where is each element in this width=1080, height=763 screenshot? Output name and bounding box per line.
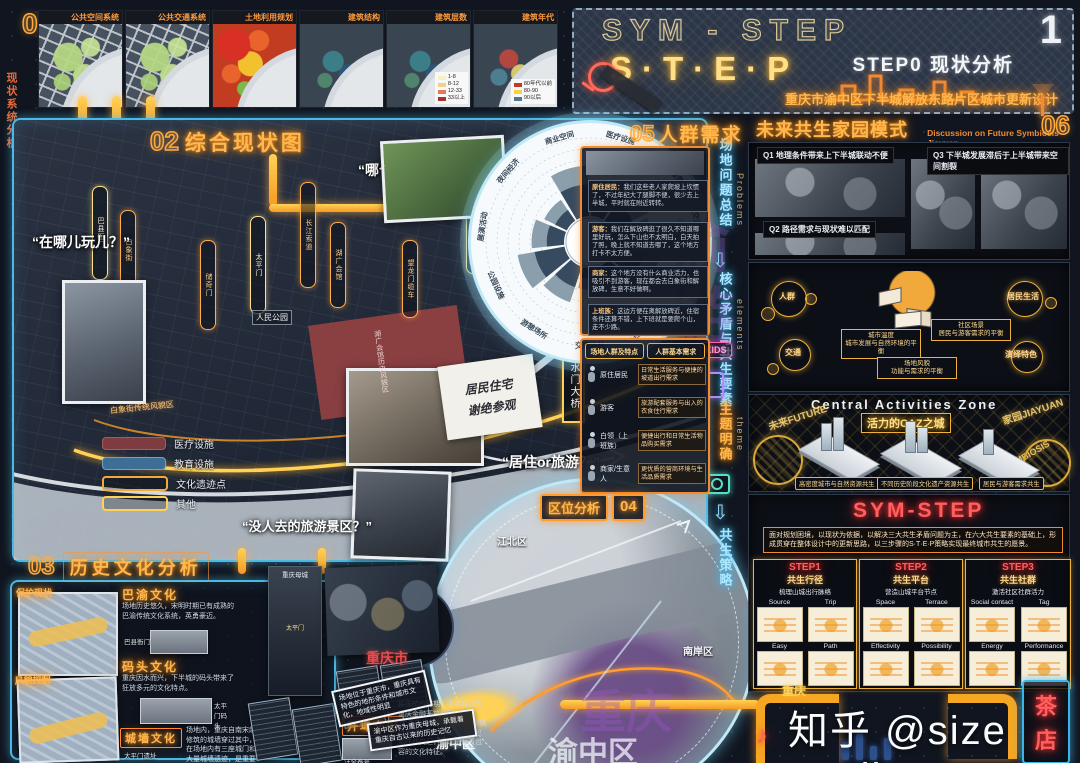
building-bar [917, 427, 928, 453]
map-card-transit: 公共交通系统 [125, 10, 210, 108]
needs-table-chips: 场地人群及特点 人群基本需求 [585, 343, 705, 359]
step-sub: 梳理山城出行脉络 [754, 586, 856, 596]
flow-arrow-icon: ⇩ [712, 248, 729, 273]
cell-label: Tag [1039, 599, 1050, 606]
legend-swatch [438, 83, 446, 87]
age-legend: 80年代以前 80-90 90以后 [511, 79, 555, 104]
legend-swatch [438, 90, 446, 94]
site-tag: 长江索道 [300, 182, 316, 288]
note-line1: 居民住宅 [464, 375, 514, 399]
section-04-header: 区位分析 04 [540, 494, 645, 521]
culture-text-wall: 场地内，重庆自南宋起修筑的城墙穿过其中，在场地内有三座城门和大量城墙遗迹，是重要… [186, 726, 262, 763]
elements-section: elements 人群 交通 居民生活 演绎特色 城市温度 城市发展与自然环境的… [748, 262, 1070, 392]
diagram-cell [863, 651, 909, 686]
legend-swatch-other [102, 496, 168, 511]
legend-swatch [514, 97, 522, 101]
sketch-caption-wall: 太平门遗址 [124, 750, 157, 760]
map-card-landuse: 土地利用规划 [212, 10, 297, 108]
radar-category-label: 展演活动 [475, 210, 489, 243]
need-row: 游客 旅游配套服务与出入的衣食住行需求 [587, 397, 706, 418]
need-row: 白领（上班族） 便捷出行和日常生活物品购买需求 [587, 430, 706, 451]
problem-q1: Q1 地理条件带来上下半城联动不便 [757, 147, 894, 164]
sketch-bayu [150, 630, 208, 654]
map-card-title: 建筑结构 [300, 11, 383, 24]
poster-board: 01 现状系统分析 公共空间系统 公共交通系统 土地利用规划 建筑结构 建筑层数… [0, 0, 1080, 763]
person-icon [587, 399, 596, 416]
element-tag-3: 场地风貌 功能与需求的平衡 [877, 357, 957, 379]
logo-letters: S·T·E·P [610, 50, 799, 88]
map-band [27, 616, 109, 648]
handwritten-note: 居民住宅 谢绝参观 [437, 354, 542, 441]
map-card-structure: 建筑结构 [299, 10, 384, 108]
cell-label: Path [824, 643, 838, 650]
legend-swatch [438, 76, 446, 80]
quote-card: 游客：我们在解放碑逛了很久不知道哪里好玩，怎么下山也不太明白，白天拍了照，晚上就… [588, 222, 708, 262]
cluster-dot [767, 363, 779, 375]
symstep-group-1: STEP1 共生行径 梳理山城出行脉络 Source Easy Trip Pat… [753, 559, 857, 689]
section-06-number: 06 [1041, 110, 1070, 141]
page-number: 1 [1040, 8, 1062, 53]
bubble-where-to-play: “在哪儿玩儿？” [32, 232, 130, 252]
element-tag-sub: 功能与需求的平衡 [881, 368, 953, 376]
panel-06-future: 未来共生家园模式探索 Discussion on Future Symbiosi… [748, 114, 1072, 694]
cluster-label-people: 人群 [779, 291, 795, 302]
mother-city-photo: 重庆母城 太平门 [268, 566, 322, 696]
need-text: 便捷出行和日常生活物品购买需求 [638, 430, 706, 451]
cluster-dot [805, 293, 817, 305]
diagram-cell [969, 651, 1015, 686]
sketch-caption-port: 汪全泰号 [344, 756, 370, 763]
bubble-empty-attraction: “没人去的旅游景区？” [242, 516, 372, 535]
section-02-title: 综合现状图 [185, 127, 305, 157]
cluster-label-traffic: 交通 [785, 347, 801, 358]
symstep-group-2: STEP2 共生平台 营造山城平台节点 Space Effectivity Te… [859, 559, 963, 689]
need-who: 游客 [600, 403, 634, 413]
history-map-label: 保护现状 [16, 586, 52, 599]
cell-label: Effectivity [871, 643, 900, 650]
history-map-protection: 保护现状 [18, 592, 118, 676]
music-note-icon: ♪ [756, 722, 768, 750]
person-icon [587, 432, 596, 449]
problem-q2: Q2 路径需求与现状难以匹配 [763, 221, 876, 238]
step-cn: 共生行径 [754, 573, 856, 586]
step-cn: 共生平台 [860, 573, 962, 586]
diagram-cell [808, 651, 854, 686]
diagram-cell [757, 607, 803, 642]
cluster-label-culture: 演绎特色 [1005, 349, 1037, 360]
need-who: 商家/生意人 [600, 464, 634, 484]
section-05-header: 05 人群需求 [630, 120, 743, 147]
map-card-title: 公共空间系统 [39, 11, 122, 24]
step-name: STEP3 [966, 562, 1070, 573]
element-tag-title: 场地风貌 [881, 360, 953, 368]
legend-swatch [438, 97, 446, 101]
needs-table-panel: 场地人群及特点 人群基本需求 原住居民 日常生活服务与便捷的坡道出行需求 游客 … [580, 338, 710, 494]
diagram-cell [1021, 607, 1067, 642]
legend-label: 80-90 [524, 88, 538, 95]
step-col: Social contact Energy [969, 598, 1015, 686]
need-row: 原住居民 日常生活服务与便捷的坡道出行需求 [587, 364, 706, 385]
platform-caption-2: 不同历史阶段文化遗产资源共生 [877, 477, 973, 490]
mother-city-caption: 重庆母城 [269, 569, 321, 579]
legend-label: 8-12 [448, 81, 459, 88]
timeline-photo-collage [324, 564, 439, 656]
need-text: 更优质的营商环境与生活品质需求 [638, 463, 706, 484]
photo-residents [586, 151, 704, 175]
timeline-card [292, 703, 343, 763]
step-col: Terrace Possibility [914, 598, 960, 686]
cluster-label-life: 居民生活 [1007, 291, 1039, 302]
quote-card: 原住居民：我们这些老人家爬坡上坎惯了，不过年纪大了腿脚不便，很少去上半城，平时就… [588, 180, 708, 212]
culture-name-dock: 码头文化 [122, 658, 178, 675]
step-col: Trip Path [808, 598, 854, 686]
legend-label: 90以后 [524, 95, 541, 102]
site-tag: 太平门 [250, 216, 266, 314]
pipe-long [560, 700, 760, 709]
chip-basic-needs: 人群基本需求 [647, 343, 706, 359]
theme-section: theme Central Activities Zone 活力的CAZ之城 未… [748, 394, 1070, 492]
diagram-cell [863, 607, 909, 642]
watermark: 知乎 @size studio [788, 698, 1080, 763]
cell-label: Social contact [971, 599, 1013, 606]
cell-label: Energy [981, 643, 1003, 650]
cell-label: Performance [1025, 643, 1064, 650]
legend-swatch-education [102, 457, 166, 470]
need-who: 白领（上班族） [600, 431, 634, 451]
taipingmen-marker: 太平门 [269, 623, 321, 632]
problem-q3: Q3 下半城发展滞后于上半城带来空间割裂 [927, 147, 1069, 175]
section-03-number: 03 [28, 553, 55, 581]
timeline-card [248, 697, 299, 761]
section-04-number: 04 [612, 494, 645, 521]
map-card-floors: 建筑层数 1-8 8-12 12-33 33以上 [386, 10, 471, 108]
building-bar [905, 421, 916, 453]
building-bar [821, 423, 832, 451]
step-col: Tag Performance [1021, 598, 1067, 686]
chip-people-traits: 场地人群及特点 [585, 343, 644, 359]
section-05-title: 人群需求 [658, 120, 742, 147]
quote-who: 游客： [592, 226, 611, 233]
need-text: 日常生活服务与便捷的坡道出行需求 [638, 364, 706, 385]
culture-name-wall: 城墙文化 [120, 728, 182, 748]
radar-category-label: 夜间经济 [493, 156, 521, 186]
cell-label: Possibility [921, 643, 951, 650]
section-02-header: 02 综合现状图 [150, 126, 305, 157]
jiangbei-label: 江北区 [497, 533, 527, 548]
element-tag-1: 城市温度 城市发展与自然环境的平衡 [841, 329, 921, 359]
quote-card: 商家：这个地方没有什么商业活力，也吸引不到游客，现在都会去白象街和解放碑，生意不… [588, 266, 708, 298]
side-label-elements: elements [735, 299, 745, 352]
history-map-label: 风貌控制 [14, 673, 50, 687]
legend-label: 医疗设施 [174, 436, 214, 451]
quote-who: 原住居民： [592, 184, 623, 191]
cluster-dot [1045, 297, 1057, 309]
park-label: 人民公园 [252, 310, 292, 325]
element-tag-2: 社区场景 居民与游客需求的平衡 [931, 319, 1011, 341]
quote-card: 上班族：这边方便在离解放碑近，住宿条件还算不错，上下班就是要爬个山，走不少路。 [588, 304, 708, 336]
cell-label: Source [769, 599, 791, 606]
radar-category-label: 公园设施 [486, 269, 508, 301]
pipe-segment [269, 154, 277, 206]
symstep-section: SYM-STEP 面对规划困境，以现状为依据，以解决三大共生矛盾问题为主，在六大… [748, 494, 1070, 692]
chongqing-city-label: 重庆市 [366, 648, 408, 668]
person-icon [587, 465, 596, 482]
section-03-header: 03 历史文化分析 [28, 552, 209, 582]
element-tag-sub: 居民与游客需求的平衡 [935, 330, 1007, 338]
flow-step-strategy: 共生策略 [712, 528, 738, 591]
side-label-problems: Problems [735, 173, 745, 227]
site-tag: 储奇门 [200, 240, 216, 330]
diagram-cell [808, 607, 854, 642]
quotes-panel: 原住居民：我们这些老人家爬坡上坎惯了，不过年纪大了腿脚不便，很少去上半城，平时就… [580, 146, 710, 336]
cell-label: Easy [772, 643, 787, 650]
section-04-title: 区位分析 [540, 494, 608, 521]
legend-label: 80年代以前 [524, 81, 552, 88]
legend-label: 教育设施 [174, 456, 214, 471]
element-tag-title: 城市温度 [845, 332, 917, 340]
cell-label: Terrace [925, 599, 948, 606]
diagram-cell [914, 607, 960, 642]
need-text: 旅游配套服务与出入的衣食住行需求 [638, 397, 706, 418]
section-03-title: 历史文化分析 [63, 552, 209, 582]
legend-swatch [514, 83, 522, 87]
pipe-segment [238, 548, 246, 574]
section-02-number: 02 [150, 126, 179, 157]
map-card-age: 建筑年代 80年代以前 80-90 90以后 [473, 10, 558, 108]
step0-label: STEP0 现状分析 [853, 50, 1014, 77]
legend-label: 33以上 [448, 95, 465, 102]
diagram-cell [914, 651, 960, 686]
element-tag-sub: 城市发展与自然环境的平衡 [845, 340, 917, 356]
caz-title-en: Central Activities Zone [811, 397, 997, 412]
cell-label: Space [876, 599, 895, 606]
side-label-theme: theme [735, 417, 745, 452]
future-diagonal-text: 未来FUTURE [766, 400, 828, 433]
symstep-description: 面对规划困境，以现状为依据，以解决三大共生矛盾问题为主，在六大共生要素的基础上，… [763, 527, 1063, 553]
cell-label: Trip [825, 599, 836, 606]
note-line2: 谢绝参观 [466, 396, 516, 420]
site-tag: 湖广会馆 [330, 222, 346, 308]
platform-caption-3: 居民与游客需求共生 [979, 477, 1044, 490]
legend-swatch [514, 90, 522, 94]
site-tag: 望龙门缆车 [402, 240, 418, 318]
legend-swatch-medical [102, 437, 166, 450]
culture-text-bayu: 场地历史悠久，宋明时期已有成熟的巴渝传统文化系统，英勇豪迈。 [122, 602, 234, 621]
building-bar [983, 429, 994, 455]
legend-label: 文化遗迹点 [176, 476, 226, 491]
radar-category-label: 商业空间 [543, 128, 575, 146]
masthead-subtitle: 重庆市渝中区下半城解放东路片区城市更新设计 [785, 89, 1058, 108]
step-col: Source Easy [757, 598, 803, 686]
step-sub: 激活社区社群活力 [966, 586, 1070, 596]
photo-street-corner [62, 280, 146, 404]
need-who: 原住居民 [600, 370, 634, 380]
legend-swatch-heritage [102, 476, 168, 491]
problem-photo-1 [755, 159, 905, 217]
legend-label: 其他 [176, 496, 196, 511]
element-tag-title: 社区场景 [935, 322, 1007, 330]
cluster-dot [761, 307, 775, 321]
legend-label: 1-8 [448, 74, 456, 81]
map-card-title: 建筑层数 [387, 11, 470, 24]
martini-glass-icon [1032, 84, 1054, 98]
history-map-style: 风貌控制 [17, 676, 120, 763]
problems-section: Q1 地理条件带来上下半城联动不便 Q3 下半城发展滞后于上半城带来空间割裂 Q… [748, 142, 1070, 260]
legend-label: 12-33 [448, 88, 462, 95]
nanan-label: 南岸区 [683, 643, 713, 658]
platform-caption-1: 高密度城市与自然资源共生 [795, 477, 879, 490]
map-card-title: 公共交通系统 [126, 11, 209, 24]
step-cn: 共生社群 [966, 573, 1070, 586]
symstep-group-3: STEP3 共生社群 激活社区社群活力 Social contact Energ… [965, 559, 1071, 689]
step-col: Space Effectivity [863, 598, 909, 686]
quote-who: 商家： [592, 270, 611, 277]
culture-text-dock: 重庆因水而兴，下半城的码头带来了狂放多元的文化特点。 [122, 674, 234, 693]
diagram-cell [969, 607, 1015, 642]
radar-category-label: 游憩场所 [519, 316, 550, 341]
map-card-title: 建筑年代 [474, 11, 557, 24]
jiayuan-diagonal-text: 家园JIAYUAN [1000, 394, 1065, 428]
sketch-dock [140, 698, 212, 724]
radar-wedge [547, 225, 566, 246]
map-card-title: 土地利用规划 [213, 11, 296, 24]
need-row: 商家/生意人 更优质的营商环境与生活品质需求 [587, 463, 706, 484]
map-card-public-space: 公共空间系统 [38, 10, 123, 108]
person-icon [587, 366, 596, 383]
map-legend: 医疗设施 教育设施 文化遗迹点 其他 [102, 436, 226, 511]
sketch-caption-bayu: 巴县衙门 [124, 636, 150, 646]
logo-outline: SYM - STEP [602, 14, 852, 48]
diagram-cell [757, 651, 803, 686]
floors-legend: 1-8 8-12 12-33 33以上 [435, 72, 468, 104]
quote-who: 上班族： [592, 308, 617, 315]
step-name: STEP1 [754, 562, 856, 573]
section-05-number: 05 [630, 121, 654, 147]
step-sub: 营造山城平台节点 [860, 586, 962, 596]
building-bar [833, 417, 844, 451]
chongqing-small-label: 重庆 [782, 682, 806, 699]
step-name: STEP2 [860, 562, 962, 573]
map-band [28, 711, 109, 746]
culture-name-bayu: 巴渝文化 [122, 586, 178, 603]
symstep-title: SYM-STEP [853, 499, 984, 523]
